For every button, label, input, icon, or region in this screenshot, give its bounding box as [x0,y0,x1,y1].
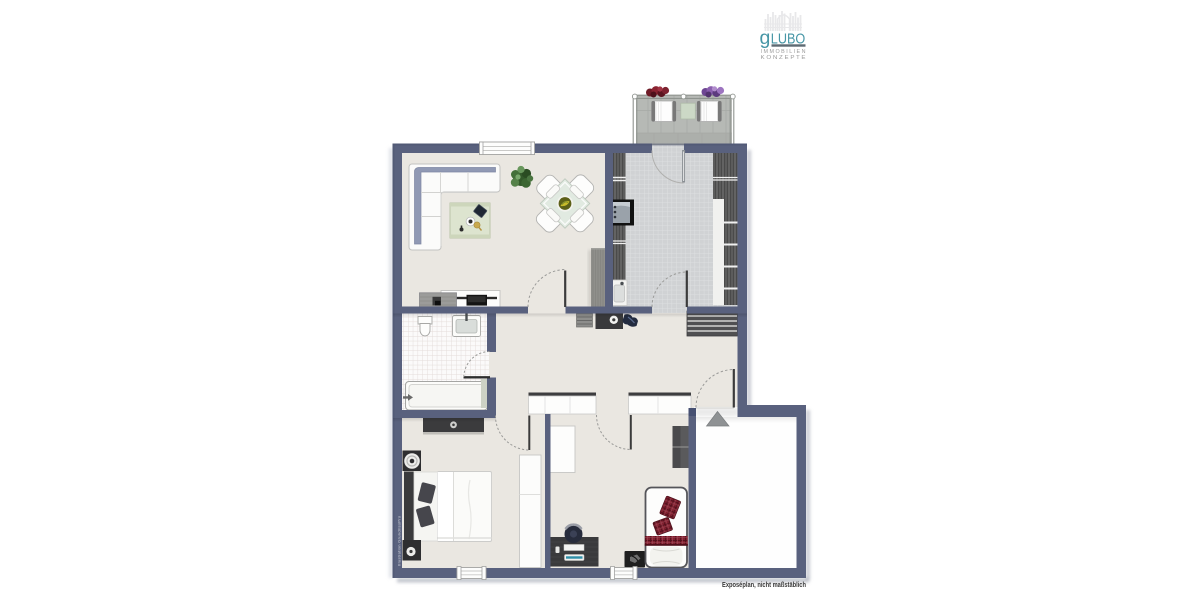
svg-text:g: g [760,27,771,49]
svg-text:Illustration GrundrissPro: Illustration GrundrissPro [397,515,402,566]
svg-text:Exposéplan, nicht maßstäblich: Exposéplan, nicht maßstäblich [722,580,806,589]
svg-text:K O N Z E P T E: K O N Z E P T E [761,55,807,61]
